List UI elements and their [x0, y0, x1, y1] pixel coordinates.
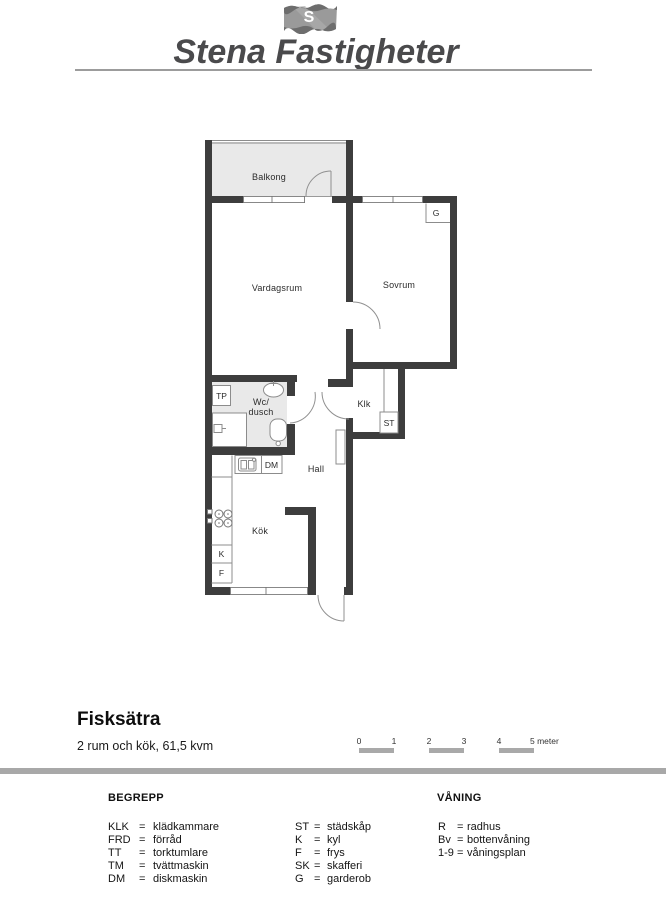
term-def: diskmaskin: [153, 873, 207, 885]
label-tp: TP: [216, 391, 227, 401]
scale-tick-5-meter: 5 meter: [530, 736, 559, 746]
legend-row: Bv=bottenvåning: [438, 833, 530, 846]
page-title: Fisksätra: [77, 709, 160, 731]
term-eq: =: [314, 873, 327, 885]
term-eq: =: [314, 847, 327, 859]
room-label-balcony: Balkong: [252, 172, 286, 182]
scale-tick-2: 2: [427, 736, 432, 746]
scale-bar-segment-1: [359, 748, 394, 753]
legend-row: TM=tvättmaskin: [108, 859, 219, 872]
room-label-kitchen: Kök: [252, 526, 268, 536]
balcony-floor: [212, 142, 346, 196]
legend-row: G=garderob: [295, 872, 371, 885]
term-def: skafferi: [327, 860, 362, 872]
legend-row: KLK=klädkammare: [108, 820, 219, 833]
scale-bar-segment-3: [499, 748, 534, 753]
legend-row: ST=städskåp: [295, 820, 371, 833]
term-def: kyl: [327, 834, 340, 846]
scale-tick-0: 0: [357, 736, 362, 746]
term-abbr: KLK: [108, 821, 139, 833]
legend-floor-column: R=radhus Bv=bottenvåning 1-9=våningsplan: [438, 820, 530, 859]
section-divider: [0, 768, 666, 774]
term-eq: =: [314, 834, 327, 846]
page-subtitle: 2 rum och kök, 61,5 kvm: [77, 739, 213, 753]
label-wardrobe-g: G: [433, 208, 440, 218]
term-abbr: DM: [108, 873, 139, 885]
walls: [205, 140, 457, 595]
term-eq: =: [139, 860, 153, 872]
floor-eq: =: [457, 847, 467, 859]
legend-row: TT=torktumlare: [108, 846, 219, 859]
legend-terms-column-1: KLK=klädkammare FRD=förråd TT=torktumlar…: [108, 820, 219, 885]
term-def: torktumlare: [153, 847, 208, 859]
term-def: städskåp: [327, 821, 371, 833]
term-eq: =: [139, 873, 153, 885]
legend-heading-terms: BEGREPP: [108, 792, 164, 804]
room-label-livingroom: Vardagsrum: [252, 283, 302, 293]
term-abbr: G: [295, 873, 314, 885]
hall-wardrobe: [336, 430, 345, 464]
term-eq: =: [314, 860, 327, 872]
term-def: tvättmaskin: [153, 860, 209, 872]
term-abbr: ST: [295, 821, 314, 833]
term-abbr: FRD: [108, 834, 139, 846]
label-fridge: K: [219, 549, 225, 559]
legend-row: 1-9=våningsplan: [438, 846, 530, 859]
window-livingroom: [243, 196, 305, 203]
term-abbr: TT: [108, 847, 139, 859]
term-def: förråd: [153, 834, 182, 846]
floor-plan-svg: [0, 0, 666, 902]
term-eq: =: [139, 834, 153, 846]
term-eq: =: [314, 821, 327, 833]
scale-tick-1: 1: [392, 736, 397, 746]
door-bedroom: [353, 302, 380, 329]
floor-def: bottenvåning: [467, 834, 530, 846]
term-abbr: SK: [295, 860, 314, 872]
scale-bar-segment-2: [429, 748, 464, 753]
scale-tick-3: 3: [462, 736, 467, 746]
term-abbr: K: [295, 834, 314, 846]
room-label-bathroom: Wc/dusch: [248, 397, 273, 417]
term-def: klädkammare: [153, 821, 219, 833]
legend-row: F=frys: [295, 846, 371, 859]
term-abbr: F: [295, 847, 314, 859]
window-kitchen: [230, 587, 308, 595]
door-closet-klk: [322, 392, 349, 419]
label-st: ST: [384, 418, 395, 428]
floor-eq: =: [457, 821, 467, 833]
floor-def: radhus: [467, 821, 501, 833]
legend-terms-column-2: ST=städskåp K=kyl F=frys SK=skafferi G=g…: [295, 820, 371, 885]
floor-def: våningsplan: [467, 847, 526, 859]
bathroom-label-line2: dusch: [248, 407, 273, 417]
legend-row: K=kyl: [295, 833, 371, 846]
room-label-hall: Hall: [308, 464, 324, 474]
balcony-railing: [205, 141, 353, 144]
term-eq: =: [139, 847, 153, 859]
term-def: frys: [327, 847, 345, 859]
floor-abbr: 1-9: [438, 847, 457, 859]
kitchen-sink-icon: [235, 456, 262, 474]
term-abbr: TM: [108, 860, 139, 872]
label-dm: DM: [265, 460, 278, 470]
legend-row: FRD=förråd: [108, 833, 219, 846]
label-freezer: F: [219, 568, 224, 578]
legend-row: SK=skafferi: [295, 859, 371, 872]
legend-heading-floor: VÅNING: [437, 792, 482, 804]
room-label-bedroom: Sovrum: [383, 280, 415, 290]
term-eq: =: [139, 821, 153, 833]
bathroom-label-line1: Wc/: [253, 397, 269, 407]
floor-abbr: Bv: [438, 834, 457, 846]
doors: [290, 171, 380, 621]
floor-eq: =: [457, 834, 467, 846]
room-label-klk: Klk: [357, 399, 370, 409]
floor-abbr: R: [438, 821, 457, 833]
scale-tick-4: 4: [497, 736, 502, 746]
legend-row: R=radhus: [438, 820, 530, 833]
door-bathroom: [290, 392, 315, 423]
door-entry: [318, 595, 344, 621]
term-def: garderob: [327, 873, 371, 885]
window-bedroom: [362, 196, 423, 203]
legend-row: DM=diskmaskin: [108, 872, 219, 885]
